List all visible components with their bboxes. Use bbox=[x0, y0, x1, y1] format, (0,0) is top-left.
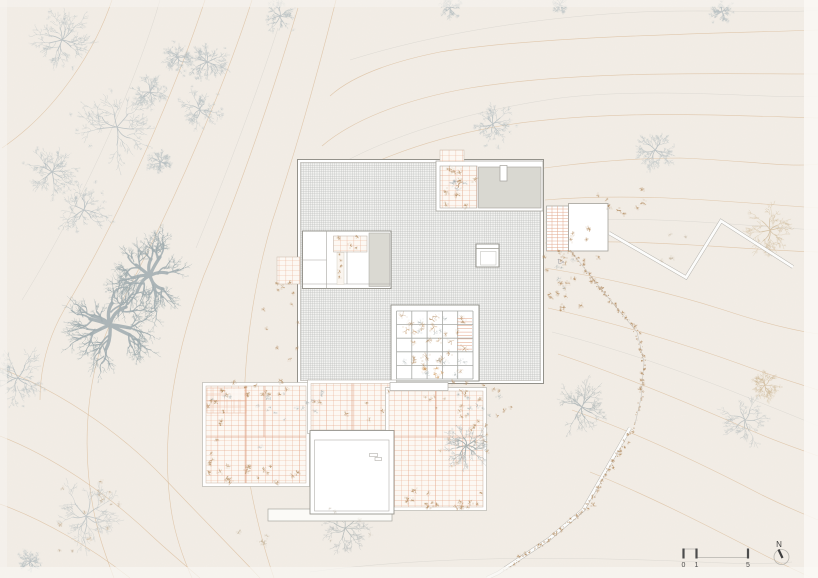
svg-text:N: N bbox=[776, 540, 782, 549]
